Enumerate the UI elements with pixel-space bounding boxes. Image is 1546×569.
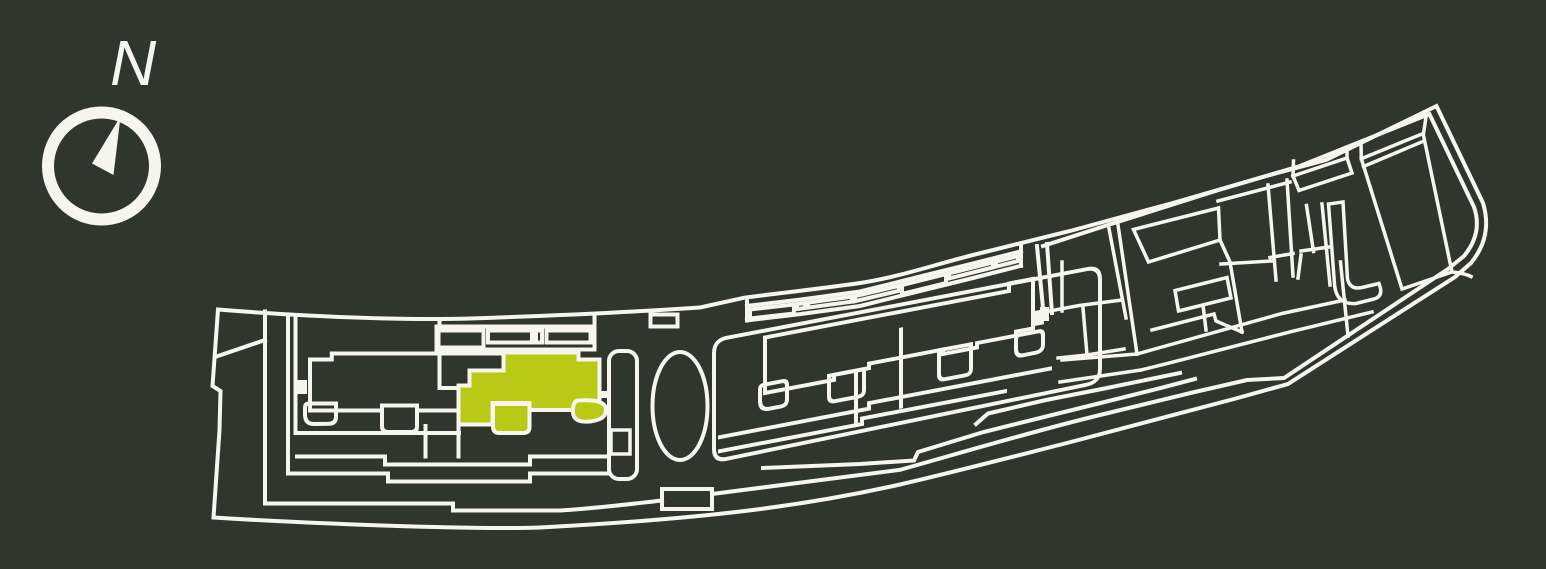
svg-text:N: N (110, 27, 157, 99)
